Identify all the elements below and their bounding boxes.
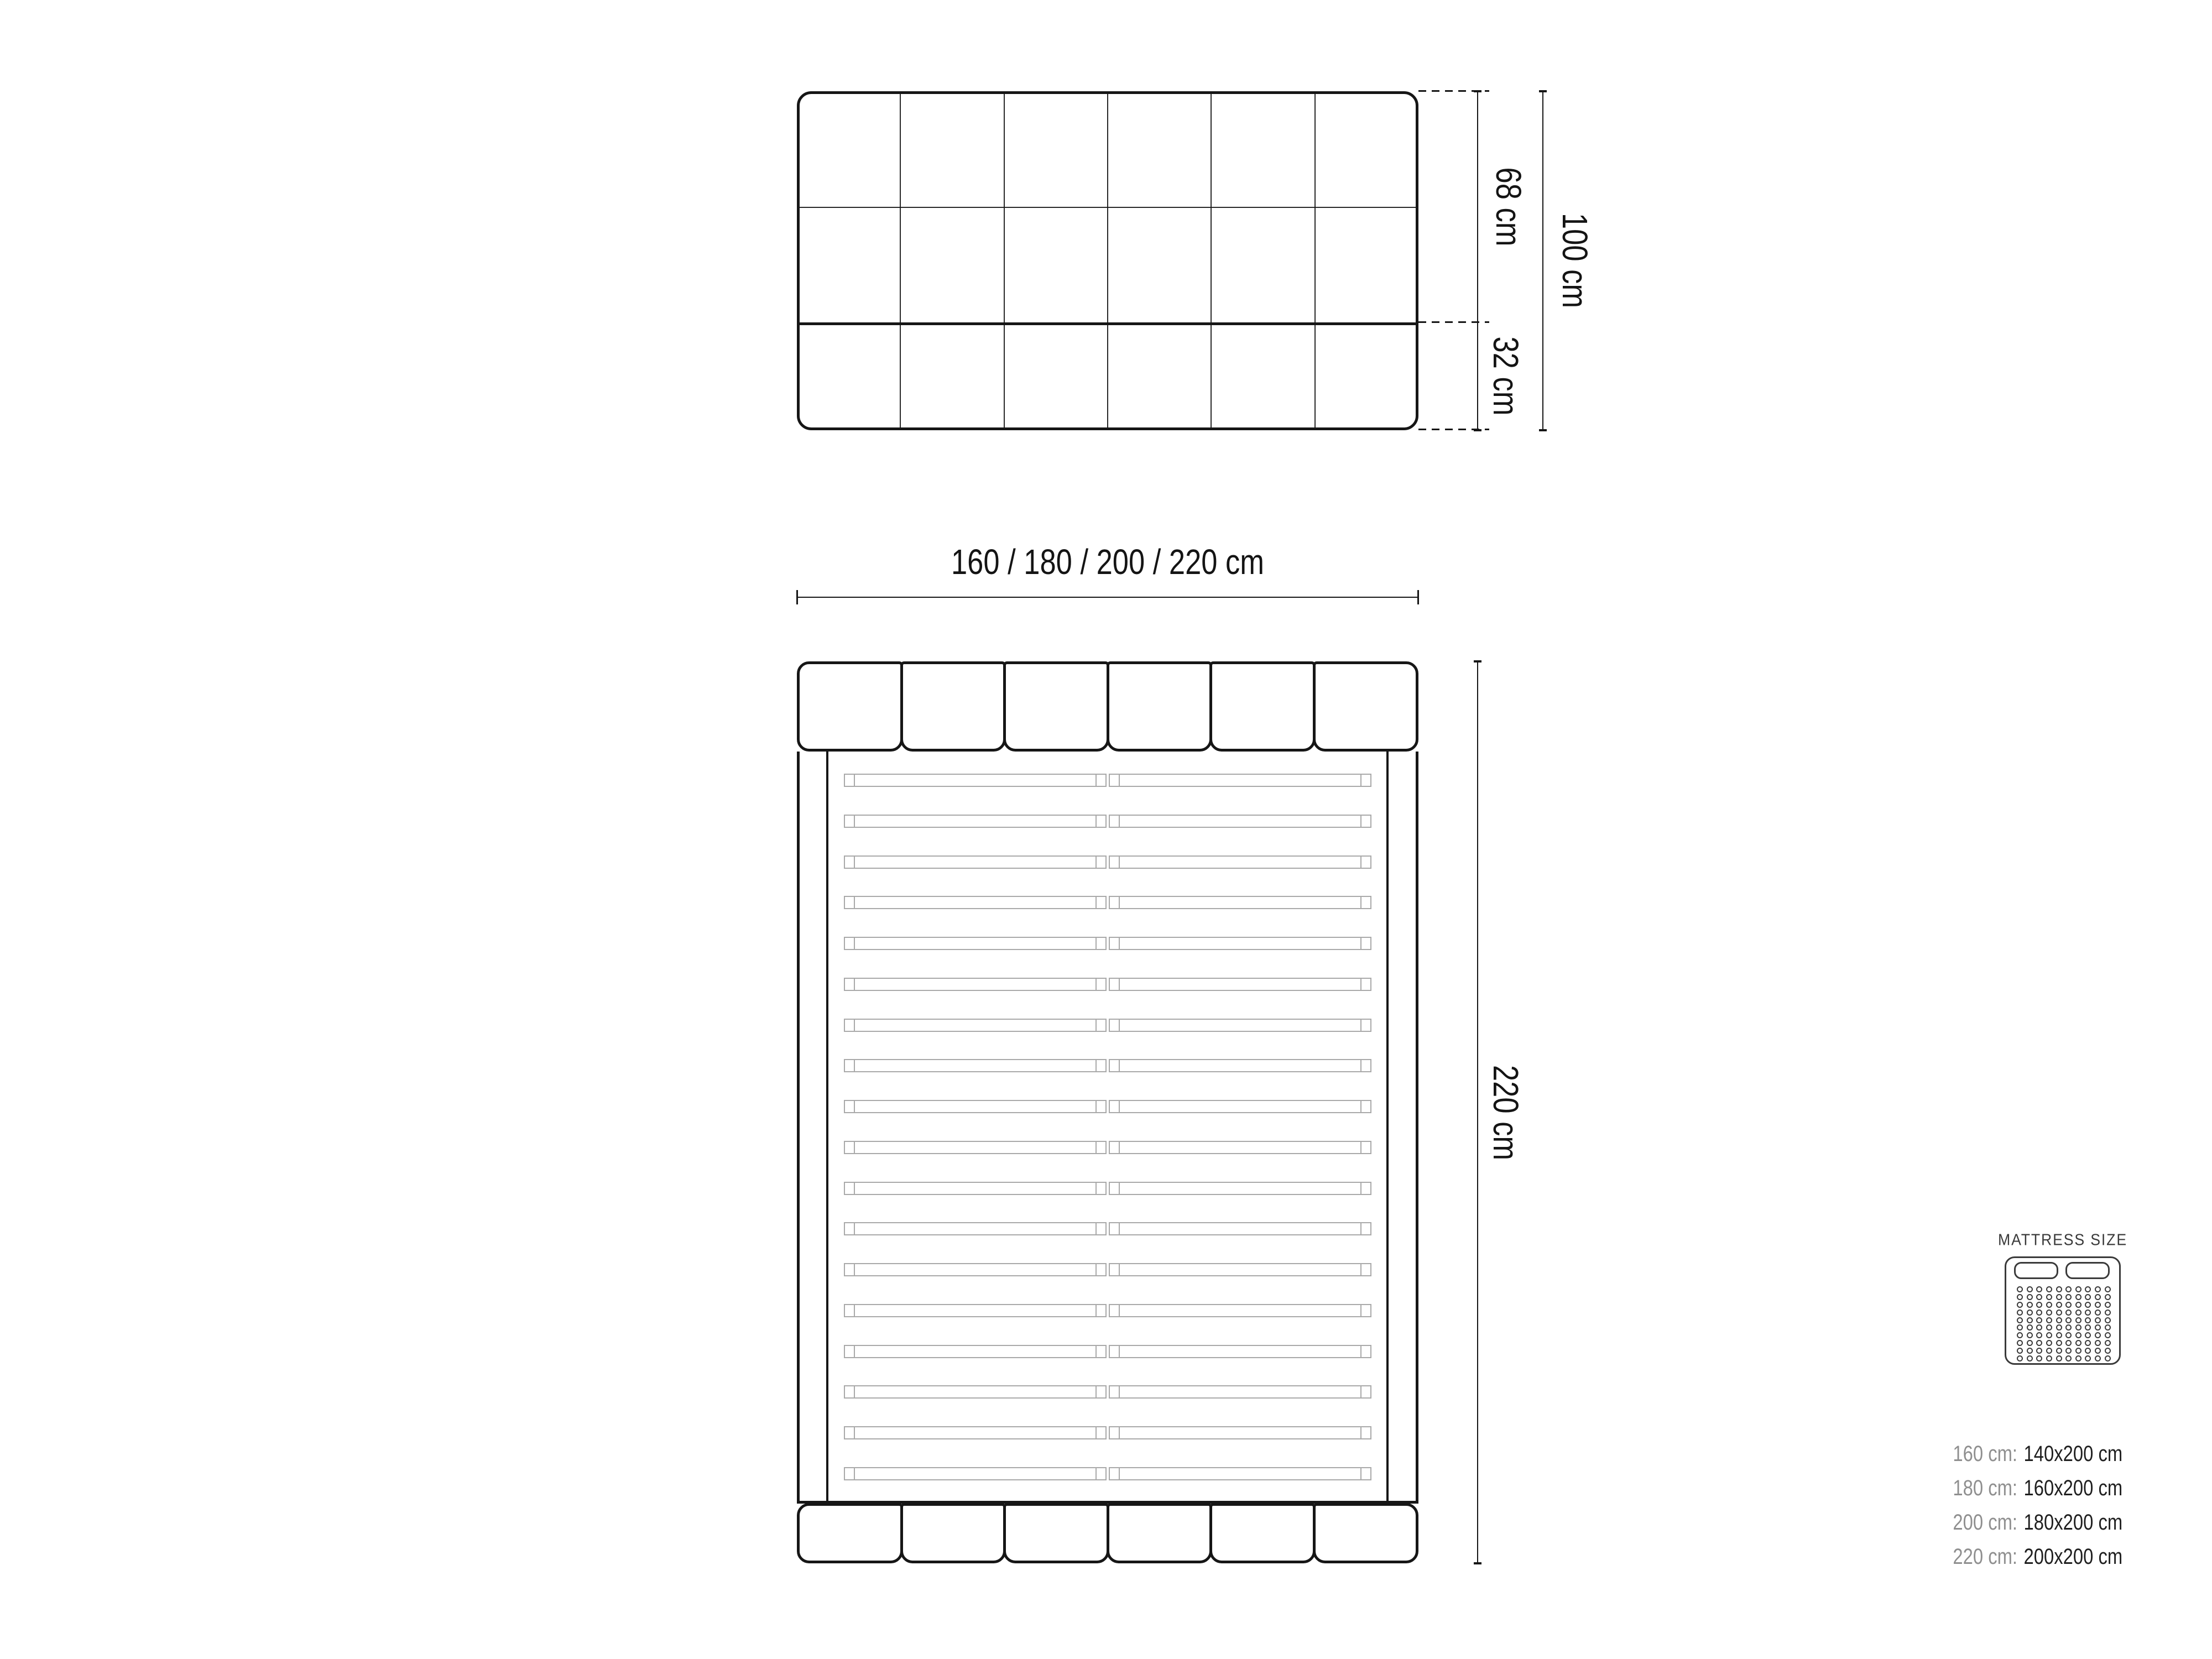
mattress-dot	[2036, 1310, 2042, 1316]
legend-row: 160 cm:140x200 cm	[1953, 1437, 2122, 1471]
mattress-dot	[2075, 1310, 2081, 1316]
slat	[844, 1182, 1107, 1195]
mattress-dot	[2095, 1302, 2101, 1308]
mattress-dot	[2065, 1332, 2072, 1338]
mattress-dot	[2075, 1348, 2081, 1354]
mattress-dot	[2095, 1355, 2101, 1361]
footboard-panel	[1003, 1503, 1109, 1563]
mattress-dot	[2085, 1317, 2091, 1323]
panel-divider-line	[900, 94, 901, 427]
headboard-panel	[1209, 661, 1316, 752]
legend-mattress-size: 140x200 cm	[2023, 1442, 2122, 1467]
slat	[1109, 1019, 1371, 1032]
side-rail-line	[826, 752, 828, 1503]
footboard-top	[797, 1503, 1418, 1563]
mattress-dot-grid	[2015, 1286, 2112, 1362]
dimension-tick	[1539, 90, 1547, 92]
dimension-tick	[1474, 429, 1481, 431]
mattress-dot	[2065, 1324, 2072, 1331]
mattress-dot	[2036, 1355, 2042, 1361]
panel-divider-line	[1004, 94, 1005, 427]
mattress-dot	[2065, 1317, 2072, 1323]
dimension-tick	[1417, 590, 1419, 604]
slat	[1109, 937, 1371, 950]
mattress-dot	[2027, 1294, 2033, 1300]
mattress-dot	[2027, 1302, 2033, 1308]
mattress-dot	[2056, 1294, 2062, 1300]
mattress-dot	[2085, 1340, 2091, 1346]
slat	[844, 1467, 1107, 1480]
dimension-line	[1477, 91, 1478, 430]
mattress-dot	[2085, 1348, 2091, 1354]
slat	[844, 1426, 1107, 1439]
slat	[1109, 1304, 1371, 1317]
mattress-dot	[2095, 1340, 2101, 1346]
mattress-dot	[2046, 1294, 2052, 1300]
mattress-dot	[2095, 1317, 2101, 1323]
mattress-dot	[2105, 1348, 2111, 1354]
legend-mattress-size: 180x200 cm	[2023, 1510, 2122, 1535]
mattress-dot	[2036, 1317, 2042, 1323]
mattress-dot	[2075, 1355, 2081, 1361]
mattress-dot	[2017, 1294, 2023, 1300]
mattress-dot	[2017, 1286, 2023, 1292]
dim-label-total: 100 cm	[1557, 213, 1593, 308]
mattress-dot	[2065, 1294, 2072, 1300]
slat	[1109, 815, 1371, 828]
mattress-dot	[2036, 1302, 2042, 1308]
mattress-dot	[2017, 1355, 2023, 1361]
side-rail-line	[1386, 752, 1389, 1503]
mattress-dot	[2046, 1324, 2052, 1331]
slat	[844, 937, 1107, 950]
legend-frame-width: 180 cm:	[1953, 1476, 2017, 1501]
dimension-tick	[1474, 1562, 1481, 1564]
headboard-panel	[797, 661, 903, 752]
mattress-dot	[2105, 1310, 2111, 1316]
legend-title: MATTRESS SIZE	[1998, 1232, 2127, 1250]
slat	[1109, 1426, 1371, 1439]
headboard-panel	[1313, 661, 1419, 752]
footboard-panel	[1107, 1503, 1213, 1563]
mattress-dot	[2017, 1302, 2023, 1308]
slat	[844, 1019, 1107, 1032]
mattress-dot	[2056, 1286, 2062, 1292]
headboard-panel	[900, 661, 1006, 752]
width-dim-label: 160 / 180 / 200 / 220 cm	[951, 544, 1264, 580]
mattress-dot	[2085, 1302, 2091, 1308]
extension-dashed-line	[1418, 321, 1489, 323]
mattress-dot	[2017, 1340, 2023, 1346]
dim-label-lower: 32 cm	[1488, 337, 1524, 416]
mattress-dot	[2046, 1340, 2052, 1346]
mattress-dot	[2056, 1317, 2062, 1323]
mattress-dot	[2046, 1302, 2052, 1308]
mattress-dot	[2095, 1332, 2101, 1338]
slat	[1109, 855, 1371, 869]
legend-frame-width: 220 cm:	[1953, 1545, 2017, 1569]
mattress-dot	[2075, 1340, 2081, 1346]
dimension-tick	[1474, 660, 1481, 662]
footboard-panel	[1209, 1503, 1316, 1563]
slat	[1109, 978, 1371, 991]
mattress-dot	[2027, 1286, 2033, 1292]
footboard-panel	[900, 1503, 1006, 1563]
mattress-dot	[2065, 1348, 2072, 1354]
mattress-dot	[2056, 1348, 2062, 1354]
mattress-dot	[2017, 1332, 2023, 1338]
mattress-dot	[2017, 1317, 2023, 1323]
mattress-dot	[2017, 1348, 2023, 1354]
slat	[1109, 1059, 1371, 1072]
mattress-dot	[2075, 1286, 2081, 1292]
dimension-line	[1477, 661, 1478, 1563]
headboard-panel	[1003, 661, 1109, 752]
footboard-panel	[1313, 1503, 1419, 1563]
dimension-line	[797, 597, 1418, 598]
mattress-dot	[2105, 1294, 2111, 1300]
mattress-dot	[2056, 1324, 2062, 1331]
mattress-dot	[2085, 1286, 2091, 1292]
slat	[1109, 1100, 1371, 1113]
headboard-panel	[1107, 661, 1213, 752]
height-dim-label: 220 cm	[1488, 1065, 1524, 1160]
mattress-dot	[2095, 1348, 2101, 1354]
mattress-dot	[2105, 1355, 2111, 1361]
slat	[844, 896, 1107, 909]
slat	[1109, 1182, 1371, 1195]
dimension-tick	[1539, 429, 1547, 431]
panel-divider-line	[1107, 94, 1108, 427]
slat	[1109, 1385, 1371, 1399]
dim-label-upper: 68 cm	[1491, 168, 1526, 247]
slat	[1109, 1467, 1371, 1480]
mattress-dot	[2027, 1355, 2033, 1361]
mattress-dot	[2095, 1294, 2101, 1300]
mattress-dot	[2065, 1340, 2072, 1346]
mattress-dot	[2095, 1310, 2101, 1316]
mattress-dot	[2085, 1332, 2091, 1338]
slat	[1109, 774, 1371, 787]
mattress-dot	[2046, 1348, 2052, 1354]
mattress-dot	[2036, 1294, 2042, 1300]
legend-row: 200 cm:180x200 cm	[1953, 1505, 2122, 1540]
mattress-dot	[2105, 1340, 2111, 1346]
mattress-dot	[2095, 1324, 2101, 1331]
slat	[844, 1100, 1107, 1113]
mattress-icon	[2005, 1256, 2121, 1365]
mattress-dot	[2095, 1286, 2101, 1292]
dimension-tick	[796, 590, 798, 604]
mattress-dot	[2046, 1332, 2052, 1338]
footboard-panel	[797, 1503, 903, 1563]
slat	[844, 1385, 1107, 1399]
mattress-dot	[2027, 1317, 2033, 1323]
mattress-dot	[2075, 1332, 2081, 1338]
mattress-dot	[2085, 1294, 2091, 1300]
side-rail-line	[797, 752, 800, 1503]
mattress-dot	[2105, 1286, 2111, 1292]
headboard-outline	[797, 91, 1418, 430]
slat	[1109, 1345, 1371, 1358]
legend-rows: 160 cm:140x200 cm180 cm:160x200 cm200 cm…	[1953, 1437, 2122, 1574]
mattress-dot	[2085, 1355, 2091, 1361]
legend-row: 180 cm:160x200 cm	[1953, 1471, 2122, 1505]
mattress-dot	[2027, 1310, 2033, 1316]
slat	[844, 1304, 1107, 1317]
slat	[1109, 1222, 1371, 1235]
mattress-dot	[2056, 1302, 2062, 1308]
mattress-dot	[2105, 1317, 2111, 1323]
mattress-dot	[2105, 1332, 2111, 1338]
legend-row: 220 cm:200x200 cm	[1953, 1540, 2122, 1574]
mattress-dot	[2017, 1310, 2023, 1316]
slat	[844, 1263, 1107, 1276]
mattress-dot	[2065, 1310, 2072, 1316]
pillow-icon	[2065, 1262, 2110, 1279]
slat	[844, 855, 1107, 869]
slat	[844, 1059, 1107, 1072]
mattress-dot	[2027, 1332, 2033, 1338]
mattress-dot	[2036, 1340, 2042, 1346]
mattress-dot	[2046, 1310, 2052, 1316]
mattress-dot	[2046, 1286, 2052, 1292]
mattress-dot	[2027, 1324, 2033, 1331]
mattress-dot	[2056, 1340, 2062, 1346]
legend-frame-width: 200 cm:	[1953, 1510, 2017, 1535]
legend-mattress-size: 200x200 cm	[2023, 1545, 2122, 1569]
mattress-dot	[2085, 1324, 2091, 1331]
dimension-line	[1542, 91, 1543, 430]
slat	[1109, 1263, 1371, 1276]
slat	[844, 1141, 1107, 1154]
mattress-dot	[2046, 1355, 2052, 1361]
side-rail-line	[1416, 752, 1418, 1503]
mattress-dot	[2056, 1310, 2062, 1316]
mattress-dot	[2036, 1286, 2042, 1292]
panel-divider-line	[1211, 94, 1212, 427]
mattress-dot	[2065, 1302, 2072, 1308]
mattress-dot	[2105, 1324, 2111, 1331]
mattress-dot	[2065, 1286, 2072, 1292]
mattress-dot	[2056, 1355, 2062, 1361]
legend-mattress-size: 160x200 cm	[2023, 1476, 2122, 1501]
slat	[844, 815, 1107, 828]
panel-divider-line	[1314, 94, 1316, 427]
slat	[844, 1345, 1107, 1358]
mattress-dot	[2036, 1332, 2042, 1338]
mattress-dot	[2075, 1324, 2081, 1331]
mattress-dot	[2017, 1324, 2023, 1331]
slat	[844, 774, 1107, 787]
mattress-dot	[2075, 1302, 2081, 1308]
bed-technical-drawing: 68 cm 32 cm 100 cm 160 / 180 / 200 / 220…	[0, 0, 2212, 1659]
slat	[1109, 1141, 1371, 1154]
mattress-dot	[2065, 1355, 2072, 1361]
dimension-tick	[1474, 90, 1481, 92]
mattress-dot	[2085, 1310, 2091, 1316]
slat	[844, 978, 1107, 991]
mattress-dot	[2046, 1317, 2052, 1323]
mattress-dot	[2036, 1324, 2042, 1331]
mattress-dot	[2027, 1340, 2033, 1346]
mattress-dot	[2075, 1294, 2081, 1300]
mattress-dot	[2056, 1332, 2062, 1338]
slat	[1109, 896, 1371, 909]
legend-frame-width: 160 cm:	[1953, 1442, 2017, 1467]
mattress-dot	[2036, 1348, 2042, 1354]
mattress-dot	[2105, 1302, 2111, 1308]
pillow-icon	[2014, 1262, 2058, 1279]
mattress-dot	[2027, 1348, 2033, 1354]
slat	[844, 1222, 1107, 1235]
mattress-dot	[2075, 1317, 2081, 1323]
headboard-top	[797, 661, 1418, 752]
